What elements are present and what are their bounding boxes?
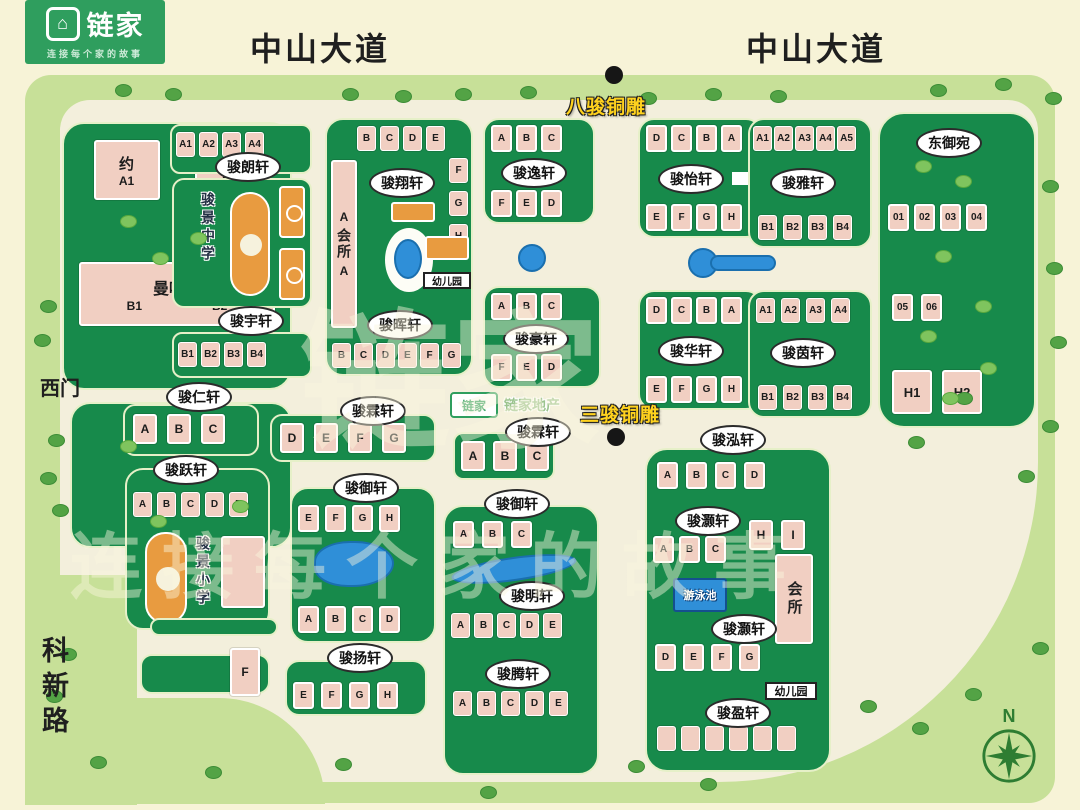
sports-court [391,202,435,222]
label-junhua: 骏华轩 [658,336,724,366]
building: A4 [831,298,850,323]
building: B3 [224,342,243,367]
building-row: ABC [485,120,593,157]
building: F [491,190,512,217]
building: C [352,606,373,633]
tree-icon [920,330,937,343]
label-junyin: 骏茵轩 [770,338,836,368]
building: B [679,536,700,563]
green-strip [150,618,278,636]
building: C [705,536,726,563]
kindergarten-east-label: 幼儿园 [765,682,817,700]
building: D [376,343,395,368]
building-row: 0506 [892,294,942,321]
kexin-road-label: 科新路 [34,636,73,776]
building: A [298,606,319,633]
building-row: DEFG [655,644,760,671]
three-horses-label: 三骏铜雕 [580,400,660,427]
building: F [449,158,468,183]
cluster-junyi2: DCBA 骏怡轩 EFGH [638,118,762,238]
building: A5 [837,126,856,151]
building: F [230,648,260,696]
building-clubhouse-west: A 会所 A [331,160,357,328]
tree-icon [965,688,982,701]
building: E [293,682,314,709]
building-row: B1B2B3B4 [758,215,852,240]
building: B4 [833,215,852,240]
tree-icon [1050,336,1067,349]
tree-icon [1018,470,1035,483]
building: C [380,126,399,151]
building-row: A1A2A3A4A5 [750,120,870,157]
building: B [493,441,517,471]
swimming-pool: 游泳池 [673,578,727,612]
building: F [711,644,732,671]
tree-icon [120,440,137,453]
building: H [721,376,742,403]
tree-icon [770,90,787,103]
building: A [133,492,152,517]
building: F [348,423,372,453]
label-junyu-east: 骏御轩 [484,489,550,519]
building-code: A1 [119,174,134,188]
building-row: ABCDE [453,691,568,716]
tree-icon [860,700,877,713]
building-row: EFGH [293,682,398,709]
building-row: EFGH [646,204,742,231]
brand-tagline: 连接每个家的故事 [47,47,143,60]
building: G [449,191,468,216]
tree-icon [908,436,925,449]
tree-icon [34,334,51,347]
basketball-court [279,248,305,300]
building: F [671,204,692,231]
tree-icon [48,434,65,447]
building: E [516,354,537,381]
building-row: A1A2A3A4 [750,292,870,329]
building: E [516,190,537,217]
building-code: B1 [127,299,142,313]
building-name: 约 [119,153,134,174]
building-row: BCDEFG [332,343,461,368]
building: D [280,423,304,453]
label-junming: 骏明轩 [499,581,565,611]
cluster-junxiang: BCDE FGH A 会所 A 骏翔轩 幼儿园 骏晖轩 BCDEFG [325,118,473,376]
pond [394,239,422,279]
brand-name: 链家 [87,4,145,43]
label-junyang: 骏扬轩 [327,643,393,673]
community-map: ⌂ 链家 连接每个家的故事 中山大道 中山大道 八骏铜雕 约 A1 克 A2 曼… [0,0,1080,810]
building: A1 [176,132,195,157]
building-row: EFGH [646,376,742,403]
building: A2 [199,132,218,157]
clubhouse-label: 会所 [334,228,354,260]
tree-icon [455,88,472,101]
building [753,726,772,751]
building: D [655,644,676,671]
building: C [715,462,736,489]
building: A2 [774,126,793,151]
cluster-junyu-west: EFGH ABCD [290,487,436,643]
building: H [721,204,742,231]
badge-agency-text: 链家地产 [504,395,560,415]
tree-icon [90,756,107,769]
building: C [181,492,200,517]
building: F [671,376,692,403]
building: B2 [783,385,802,410]
building: D [541,354,562,381]
building: A [453,521,474,548]
label-junlin-east: 骏霖轩 [505,417,571,447]
building: E [543,613,562,638]
tree-icon [52,504,69,517]
building: B [167,414,191,444]
pond [314,541,394,587]
compass-north-label: N [1003,706,1016,727]
pool-label: 游泳池 [684,587,717,603]
building: D [205,492,224,517]
label-junlin-west: 骏霖轩 [340,396,406,426]
building: B3 [808,215,827,240]
three-horses-statue-dot [607,428,625,446]
building-row: ABCD [298,606,400,633]
building [729,726,748,751]
building-row: BCDE [357,126,445,151]
building: G [382,423,406,453]
tree-icon [165,88,182,101]
label-junyi: 骏逸轩 [501,158,567,188]
building: E [398,343,417,368]
cluster-junyin: A1A2A3A4 骏茵轩 B1B2B3B4 [748,290,872,418]
building: I [781,520,805,550]
label-junteng: 骏腾轩 [485,659,551,689]
building: B1 [758,215,777,240]
building-row: ABCDE [133,492,248,517]
building: F [325,505,346,532]
building: A [657,462,678,489]
building-row: FED [491,354,562,381]
building: A3 [806,298,825,323]
building: C [354,343,373,368]
running-track [230,192,270,296]
building: E [426,126,445,151]
tree-icon [40,300,57,313]
tree-icon [120,215,137,228]
building: E [646,376,667,403]
building: H1 [892,370,932,414]
west-gate-label: 西门 [40,372,80,401]
road-zhongshan-left: 中山大道 [250,24,390,70]
building: B [516,293,537,320]
label-junhui: 骏晖轩 [367,310,433,340]
tree-icon [942,392,959,405]
building: H [379,505,400,532]
building-row: ABCD [657,462,765,489]
primary-school-name: 骏景小学 [193,536,213,626]
building-row [657,726,796,751]
building [777,726,796,751]
eight-horses-statue-dot [605,66,623,84]
tree-icon [705,88,722,101]
building: A1 [753,126,772,151]
tree-icon [980,362,997,375]
tree-icon [1042,420,1059,433]
building: A [721,297,742,324]
label-junren: 骏仁轩 [166,382,232,412]
badge-logo: 链家 [450,392,498,418]
building: B3 [808,385,827,410]
building: A [653,536,674,563]
building: D [379,606,400,633]
tree-icon [480,786,497,799]
cluster-junren: ABC [123,404,259,456]
label-junyue: 骏跃轩 [153,455,219,485]
label-junhao: 骏豪轩 [503,324,569,354]
tree-icon [1042,180,1059,193]
school-building [221,536,265,608]
building: G [739,644,760,671]
building: A [721,125,742,152]
building: C [671,125,692,152]
compass: N [980,706,1038,785]
cluster-junhao: ABC 骏豪轩 FED [483,286,601,388]
building: D [525,691,544,716]
building: C [541,125,562,152]
building: A3 [795,126,814,151]
tree-icon [1046,262,1063,275]
building [657,726,676,751]
building: E [646,204,667,231]
clubhouse-label: 会所 [784,581,805,617]
tree-icon [335,758,352,771]
middle-school-name: 骏景中学 [198,192,218,298]
building: A [451,613,470,638]
building [681,726,700,751]
building: B4 [833,385,852,410]
building: 05 [892,294,913,321]
sports-court [425,236,469,260]
tree-icon [935,250,952,263]
building: 02 [914,204,935,231]
building: G [352,505,373,532]
building: A [491,125,512,152]
building: A2 [781,298,800,323]
building: 06 [921,294,942,321]
label-junhong: 骏泓轩 [700,425,766,455]
pond-circle [518,244,546,272]
compass-rose-icon [980,727,1038,785]
building-row: DCBA [640,292,760,329]
lianjia-logo: ⌂ 链家 连接每个家的故事 [25,0,165,64]
building: 04 [966,204,987,231]
building: D [646,125,667,152]
building: C [201,414,225,444]
building: G [349,682,370,709]
building: A4 [816,126,835,151]
tree-icon [520,86,537,99]
building-row: ABC [453,521,532,548]
building: G [696,376,717,403]
building-row: ABCDE [451,613,562,638]
label-junyi2: 骏怡轩 [658,164,724,194]
kindergarten-west-label: 幼儿园 [423,272,471,289]
building-row: ABC [485,288,599,325]
building-row: 01020304 [888,204,987,231]
building: B2 [201,342,220,367]
cluster-junyu-junming-junteng: ABC 骏明轩 ABCDE 骏腾轩 ABCDE [443,505,599,775]
building [705,726,724,751]
cluster-junhua: DCBA 骏华轩 EFGH [638,290,762,410]
building-row: B1B2B3B4 [758,385,852,410]
building: B2 [783,215,802,240]
label-junhao2-south: 骏灏轩 [711,614,777,644]
basketball-court [279,186,305,238]
label-junyu-north: 骏宇轩 [218,306,284,336]
building: B [482,521,503,548]
building: B [696,125,717,152]
building: B [157,492,176,517]
building-code: A [340,264,349,278]
building: G [696,204,717,231]
cluster-junhong-junhao: ABCD 骏灏轩 ABC H I 游泳池 会所 骏灏轩 DEFG 幼儿园 骏盈轩 [645,448,831,772]
building-row: DCBA [640,120,760,157]
building: C [501,691,520,716]
building: B [477,691,496,716]
tree-icon [1032,642,1049,655]
tree-icon [930,84,947,97]
tree-icon [152,252,169,265]
tree-icon [995,78,1012,91]
building: 03 [940,204,961,231]
cluster-junyu-north: B1B2B3B4 [172,332,312,378]
label-junxiang: 骏翔轩 [369,168,435,198]
tree-icon [628,760,645,773]
building: D [646,297,667,324]
building-code: A [340,210,349,224]
building: B4 [247,342,266,367]
building: A [133,414,157,444]
cluster-junya: A1A2A3A4A5 骏雅轩 B1B2B3B4 [748,118,872,248]
building: F [420,343,439,368]
tree-icon [190,232,207,245]
tree-icon [395,90,412,103]
building: B1 [758,385,777,410]
road-zhongshan-right: 中山大道 [746,24,886,70]
label-dongyuwan: 东御宛 [916,128,982,158]
building: B [516,125,537,152]
cluster-dongyuwan: 东御宛 01020304 0506 H1H2 [878,112,1036,428]
building: C [511,521,532,548]
tree-icon [232,500,249,513]
tree-icon [342,88,359,101]
house-icon: ⌂ [46,7,80,41]
label-junying: 骏盈轩 [705,698,771,728]
eight-horses-label: 八骏铜雕 [566,92,646,119]
building: D [520,613,539,638]
building: A [453,691,472,716]
building: B [686,462,707,489]
running-track [145,532,187,624]
tree-icon [205,766,222,779]
building: G [442,343,461,368]
building: B1 [178,342,197,367]
building: H [377,682,398,709]
tree-icon [955,175,972,188]
label-junlang: 骏朗轩 [215,152,281,182]
building: B [357,126,376,151]
tree-icon [975,300,992,313]
building: E [549,691,568,716]
building: B [696,297,717,324]
cluster-junyue: ABCDE 骏景小学 [125,468,270,630]
building: A1 [756,298,775,323]
tree-icon [912,722,929,735]
tree-icon [115,84,132,97]
building: D [744,462,765,489]
building: B [474,613,493,638]
building: C [671,297,692,324]
building: A [491,293,512,320]
cluster-junyi: ABC 骏逸轩 FED [483,118,595,224]
tree-icon [700,778,717,791]
building: D [403,126,422,151]
tree-icon [40,472,57,485]
building: B [325,606,346,633]
building: E [298,505,319,532]
tree-icon [150,515,167,528]
building: 约 A1 [94,140,160,200]
building: A [461,441,485,471]
building: B [332,343,351,368]
building-clubhouse-east: 会所 [775,554,813,644]
building: F [321,682,342,709]
building: 01 [888,204,909,231]
building-row: ABC [125,406,257,452]
label-junyu-west: 骏御轩 [333,473,399,503]
building: H [749,520,773,550]
building: E [314,423,338,453]
building: C [541,293,562,320]
tree-icon [1045,92,1062,105]
building: C [497,613,516,638]
building-row: EFGH [298,505,400,532]
building: E [683,644,704,671]
building-row: B1B2B3B4 [174,334,310,375]
building-row: ABC [653,536,726,563]
label-junhao2-north: 骏灏轩 [675,506,741,536]
lianjia-map-badge: 链家 链家地产 [450,392,560,418]
building: F [491,354,512,381]
building-row: FED [491,190,562,217]
label-junya: 骏雅轩 [770,168,836,198]
tree-icon [915,160,932,173]
building: D [541,190,562,217]
